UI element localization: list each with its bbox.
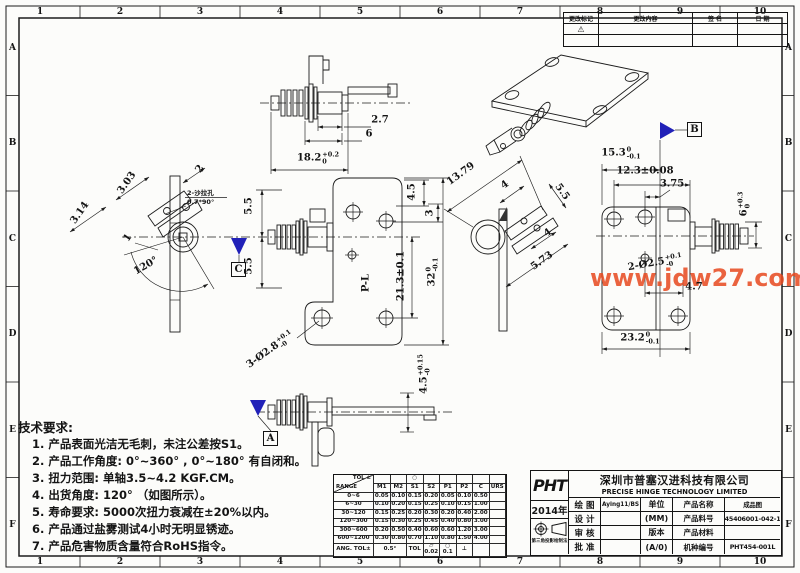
dim-tolerance: +0.20 xyxy=(322,152,339,165)
third-angle-projection-icon xyxy=(533,521,567,537)
zone-letter-left: D xyxy=(9,329,17,339)
dimension-label: 12.3±0.08 xyxy=(616,166,673,177)
tol-value-cell: 0.20 xyxy=(440,510,457,519)
tech-requirement-item: 5. 寿命要求: 5000次扭力衰减在±20%以内。 xyxy=(18,504,336,521)
tol-value-cell: 2.00 xyxy=(473,510,490,519)
tol-value-cell: 0.10 xyxy=(440,502,457,511)
dimension-label: 6 xyxy=(366,129,373,140)
tol-value-cell: 0.80 xyxy=(440,536,457,545)
tech-requirement-item: 3. 扭力范围: 单轴3.5~4.2 KGF.CM。 xyxy=(18,470,336,487)
tol-value-cell: 0.10 xyxy=(391,493,408,502)
tb-value xyxy=(601,512,641,526)
tb-model-number: PHT454-001L xyxy=(725,540,780,554)
zone-number-top: 7 xyxy=(517,7,523,17)
company-name-cn: 深圳市普塞汉进科技有限公司 xyxy=(600,472,750,488)
tol-value-cell: 0.60 xyxy=(424,527,441,536)
drawing-sheet: .s{stroke:#1c1c1c;stroke-width:.9;fill:n… xyxy=(0,0,800,573)
tol-value-cell xyxy=(490,527,507,536)
tol-value-cell xyxy=(490,493,507,502)
tb-field: 产品名称 xyxy=(673,498,725,512)
tech-requirements-title: 技术要求: xyxy=(18,417,336,436)
tb-value xyxy=(601,526,641,540)
company-name: 深圳市普塞汉进科技有限公司 PRECISE HINGE TECHNOLOGY L… xyxy=(569,471,780,498)
tol-value-cell: 0.45 xyxy=(424,519,441,528)
tol-value-cell xyxy=(490,519,507,528)
tol-range-cell: 600~1200 xyxy=(334,536,374,545)
tol-value-cell: 0.30 xyxy=(374,536,391,545)
company-logo: PHT xyxy=(531,471,569,501)
tol-value-cell: 1.10 xyxy=(424,536,441,545)
company-name-en: PRECISE HINGE TECHNOLOGY LIMITED xyxy=(602,488,748,496)
revision-cell xyxy=(599,24,693,35)
dimension-label: 4.5 +0.15-0 xyxy=(418,354,431,394)
zone-number-top: 3 xyxy=(197,7,203,17)
tol-col-header: S1 xyxy=(407,484,424,493)
zone-letter-right: E xyxy=(785,425,792,435)
tb-label: 绘 图 xyxy=(569,498,601,512)
tol-value-cell: 0.50 xyxy=(391,527,408,536)
tb-field: 产品料号 xyxy=(673,512,725,526)
tol-value-cell: 0.50 xyxy=(473,493,490,502)
tb-value xyxy=(601,540,641,554)
tb-unit-value: (MM) xyxy=(641,512,673,526)
angle-tol-label: ANG. TOL± xyxy=(334,544,374,557)
tol-value-cell: 0.30 xyxy=(391,519,408,528)
countersink-note: 2-沙拉孔 xyxy=(187,189,214,197)
dimension-label: 3 xyxy=(425,210,436,217)
tol-value-cell: 0.40 xyxy=(440,519,457,528)
zone-letter-left: E xyxy=(9,425,16,435)
tol-range-cell: 6~30 xyxy=(334,502,374,511)
view-label-pl: P-L xyxy=(361,274,372,292)
tol-value-cell xyxy=(490,536,507,545)
tech-requirements-list: 1. 产品表面光洁无毛刺，未注公差按S1。2. 产品工作角度: 0°~360° … xyxy=(18,436,336,555)
tol-value-cell: 4.00 xyxy=(473,536,490,545)
tb-part-number: 145406001-042-10 xyxy=(725,512,780,526)
zone-number-top: 6 xyxy=(437,7,443,17)
tol-value-cell: 0.10 xyxy=(374,502,391,511)
dimension-label: 21.3±0.1 xyxy=(396,251,407,301)
tol-col-header: URS xyxy=(490,484,507,493)
zone-number-bottom: 8 xyxy=(597,557,603,567)
zone-number-top: 5 xyxy=(357,7,363,17)
tol-value-cell: 0.15 xyxy=(407,502,424,511)
tol-range-cell: 30~120 xyxy=(334,510,374,519)
tb-unit-label: 单位 xyxy=(641,498,673,512)
zone-number-bottom: 1 xyxy=(37,557,43,567)
tol-value-cell xyxy=(490,502,507,511)
tol-col-header: C xyxy=(473,484,490,493)
tb-field: 产品材料 xyxy=(673,526,725,540)
projection-note: 第三角投影绘制法 xyxy=(532,538,568,544)
zone-letter-right: F xyxy=(785,520,791,530)
tol-value-cell: 0.60 xyxy=(440,527,457,536)
dimension-label: 4.5 xyxy=(407,183,418,200)
dim-main: 18.2 xyxy=(297,153,321,164)
tol-value-cell: 0.15 xyxy=(407,493,424,502)
zone-number-bottom: 3 xyxy=(197,557,203,567)
revision-cell xyxy=(693,35,738,46)
dimension-label: 5.5 xyxy=(244,257,255,274)
tol-range-cell: 120~300 xyxy=(334,519,374,528)
dimension-label: 2.7 xyxy=(371,115,388,126)
year-label: 2014年 xyxy=(531,501,569,519)
tol-value-cell: 1.20 xyxy=(457,527,474,536)
tb-label: 批 准 xyxy=(569,540,601,554)
dimension-label: 3.75 xyxy=(660,179,684,190)
zone-letter-left: A xyxy=(9,43,16,53)
tb-value: Aying11/BS xyxy=(601,498,641,512)
zone-letter-right: D xyxy=(785,329,793,339)
zone-letter-left: F xyxy=(9,520,15,530)
tol-value-cell: 0.40 xyxy=(407,527,424,536)
tol-value-cell: 0.15 xyxy=(374,510,391,519)
tech-requirement-item: 4. 出货角度: 120° （如图所示）。 xyxy=(18,487,336,504)
tol-value-cell: 0.10 xyxy=(457,493,474,502)
tol-range-cell: 300~600 xyxy=(334,527,374,536)
tol-value-cell: 0.80 xyxy=(457,519,474,528)
tol-value-cell: 1.50 xyxy=(457,536,474,545)
revision-cell xyxy=(693,24,738,35)
tol-value-cell: 0.40 xyxy=(457,510,474,519)
tol-value-cell xyxy=(490,510,507,519)
zone-number-bottom: 10 xyxy=(754,557,767,567)
tol-col-header: P1 xyxy=(440,484,457,493)
tb-label: 设 计 xyxy=(569,512,601,526)
tol-value-cell: 3.00 xyxy=(473,527,490,536)
zone-number-bottom: 5 xyxy=(357,557,363,567)
tol-value-cell: 0.05 xyxy=(374,493,391,502)
tol-range-cell: 0~6 xyxy=(334,493,374,502)
zone-number-top: 1 xyxy=(37,7,43,17)
tb-material xyxy=(725,526,780,540)
tol-value-cell: 0.20 xyxy=(424,493,441,502)
tol-col-header: M1 xyxy=(374,484,391,493)
zone-number-bottom: 7 xyxy=(517,557,523,567)
dimension-label: 18.2 +0.20 xyxy=(297,152,339,165)
tb-version-label: 版本 xyxy=(641,526,673,540)
zone-letter-right: B xyxy=(785,138,793,148)
zone-letter-left: B xyxy=(9,138,17,148)
tol-value-cell: 0.25 xyxy=(407,519,424,528)
tol-value-cell: 0.30 xyxy=(424,510,441,519)
tolerance-table: TOL ± RANGE ○ M1 M2 S1 S2 P1 P2 C URS AN… xyxy=(333,474,507,558)
zone-number-bottom: 4 xyxy=(277,557,283,567)
tol-value-cell: 0.20 xyxy=(407,510,424,519)
revision-cell xyxy=(738,24,787,35)
tol-value-cell: 0.80 xyxy=(391,536,408,545)
title-block: PHT 2014年 第三角投影绘制法 深圳市普塞汉进科技有限公司 PRECISE… xyxy=(530,470,782,556)
tech-requirement-item: 1. 产品表面光洁无毛刺，未注公差按S1。 xyxy=(18,436,336,453)
tol-value-cell: 0.20 xyxy=(391,502,408,511)
tb-version-value: (A/0) xyxy=(641,540,673,554)
revision-header-date: 日 期 xyxy=(738,13,787,24)
tech-requirement-item: 2. 产品工作角度: 0°~360° , 0°~180° 有自闭和。 xyxy=(18,453,336,470)
tech-requirement-item: 7. 产品危害物质含量符合RoHS指令。 xyxy=(18,538,336,555)
dimension-label: 4.7 xyxy=(685,282,702,293)
tech-requirement-item: 6. 产品通过盐雾测试4小时无明显锈迹。 xyxy=(18,521,336,538)
tol-value-cell: 0.20 xyxy=(374,527,391,536)
zone-number-bottom: 9 xyxy=(677,557,683,567)
title-block-grid: 绘 图 Aying11/BS 单位 产品名称 成品图 设 计 (MM) 产品料号… xyxy=(569,498,780,554)
tol-value-cell: 0.70 xyxy=(407,536,424,545)
tol-col-header: M2 xyxy=(391,484,408,493)
zone-number-top: 4 xyxy=(277,7,283,17)
tol-value-cell: 0.25 xyxy=(424,502,441,511)
projection-cell: 第三角投影绘制法 xyxy=(531,519,569,554)
tol-value-cell: 0.15 xyxy=(457,502,474,511)
dimension-label: 23.2 0-0.1 xyxy=(620,332,659,345)
tb-label: 审 核 xyxy=(569,526,601,540)
revision-header-mark: 更改标记 xyxy=(564,13,599,24)
revision-cell xyxy=(599,35,693,46)
revision-table: 更改标记 更改内容 签 名 日 期 ⚠ xyxy=(563,12,788,47)
tol-col-header: P2 xyxy=(457,484,474,493)
tol-value-cell: 0.25 xyxy=(391,510,408,519)
zone-letter-right: C xyxy=(785,234,792,244)
technical-requirements: 技术要求: 1. 产品表面光洁无毛刺，未注公差按S1。2. 产品工作角度: 0°… xyxy=(18,417,336,555)
tol-value-cell: 3.00 xyxy=(473,519,490,528)
zone-letter-left: C xyxy=(9,234,16,244)
revision-header-sign: 签 名 xyxy=(693,13,738,24)
countersink-note-2: 0.7*90° xyxy=(187,198,214,206)
revision-header-content: 更改内容 xyxy=(599,13,693,24)
revision-cell xyxy=(738,35,787,46)
perpendicularity-icon: ⊥ xyxy=(457,544,474,557)
dimension-label: 5.5 xyxy=(244,197,255,214)
revision-cell xyxy=(564,35,599,46)
tol-value-cell: 0.15 xyxy=(374,519,391,528)
tol-value-cell: 0.05 xyxy=(440,493,457,502)
revision-mark-icon: ⚠ xyxy=(564,24,599,35)
circle-symbol: ○ xyxy=(407,475,424,484)
dimension-label: 15.3 0-0.1 xyxy=(601,147,640,160)
tb-field: 机种编号 xyxy=(673,540,725,554)
dimension-label: 6 +0.30 xyxy=(738,192,751,217)
zone-number-bottom: 2 xyxy=(117,557,123,567)
view-isometric xyxy=(486,55,648,155)
tb-data: 成品图 xyxy=(725,498,780,512)
zone-number-bottom: 6 xyxy=(437,557,443,567)
datum-box-b: B xyxy=(687,122,702,137)
zone-number-top: 2 xyxy=(117,7,123,17)
angle-tol-value: 0.5° xyxy=(374,544,407,557)
tol-value-cell: 1.00 xyxy=(473,502,490,511)
dimension-label: 32 0-0.1 xyxy=(426,258,439,287)
tolerance-corner-cell: TOL ± RANGE xyxy=(334,475,374,493)
circularity-cell: ○ 0.1 xyxy=(440,544,457,557)
flatness-cell: ▱ 0.02 xyxy=(424,544,441,557)
geo-tol-label: TOL xyxy=(407,544,424,557)
tol-col-header: S2 xyxy=(424,484,441,493)
